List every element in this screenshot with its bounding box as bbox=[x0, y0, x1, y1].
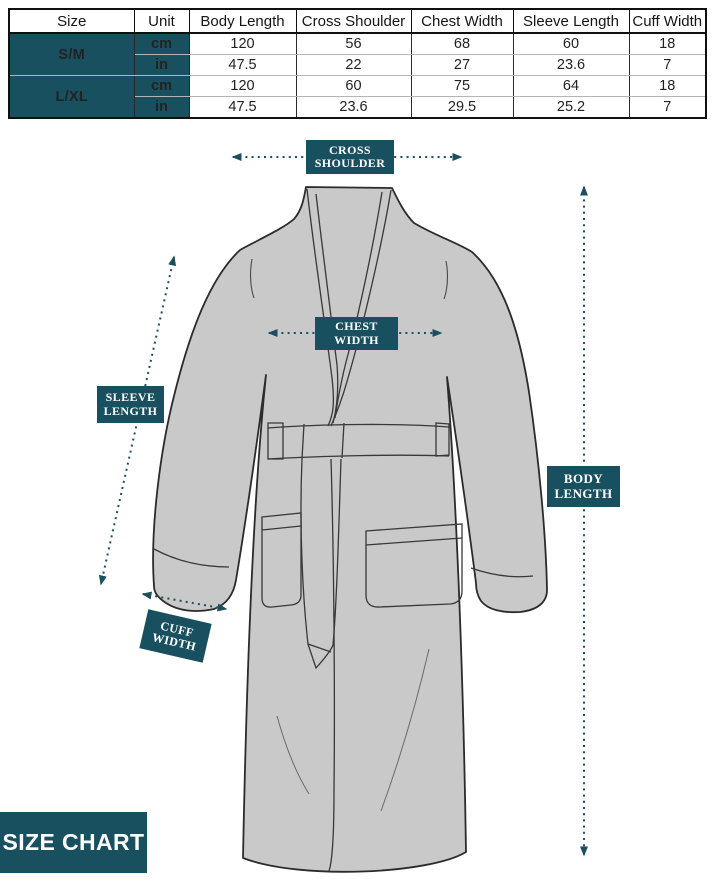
size-chart-sheet: Size Unit Body Length Cross Shoulder Che… bbox=[0, 0, 713, 879]
body-length-label: BODY LENGTH bbox=[547, 466, 620, 507]
cross-shoulder-label: CROSS SHOULDER bbox=[306, 140, 394, 174]
chest-width-label: CHEST WIDTH bbox=[315, 317, 398, 350]
sleeve-length-label: SLEEVE LENGTH bbox=[97, 386, 164, 423]
robe-diagram bbox=[0, 0, 713, 879]
size-chart-title: SIZE CHART bbox=[0, 812, 147, 873]
robe-silhouette bbox=[153, 187, 547, 872]
